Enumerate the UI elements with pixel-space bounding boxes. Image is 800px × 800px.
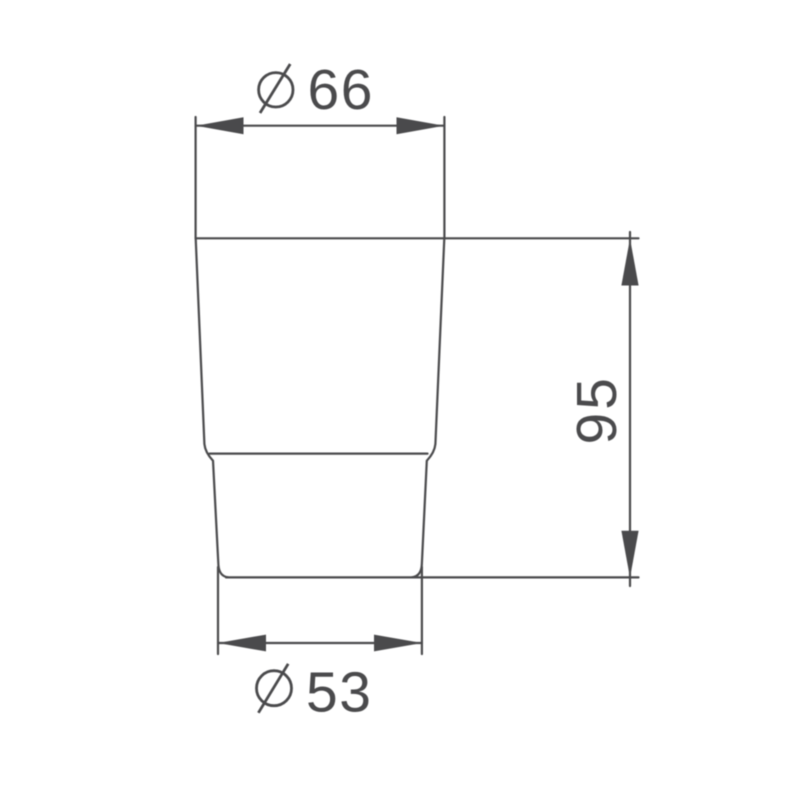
- svg-text:66: 66: [308, 58, 374, 122]
- svg-text:95: 95: [565, 375, 629, 444]
- svg-text:53: 53: [306, 661, 372, 725]
